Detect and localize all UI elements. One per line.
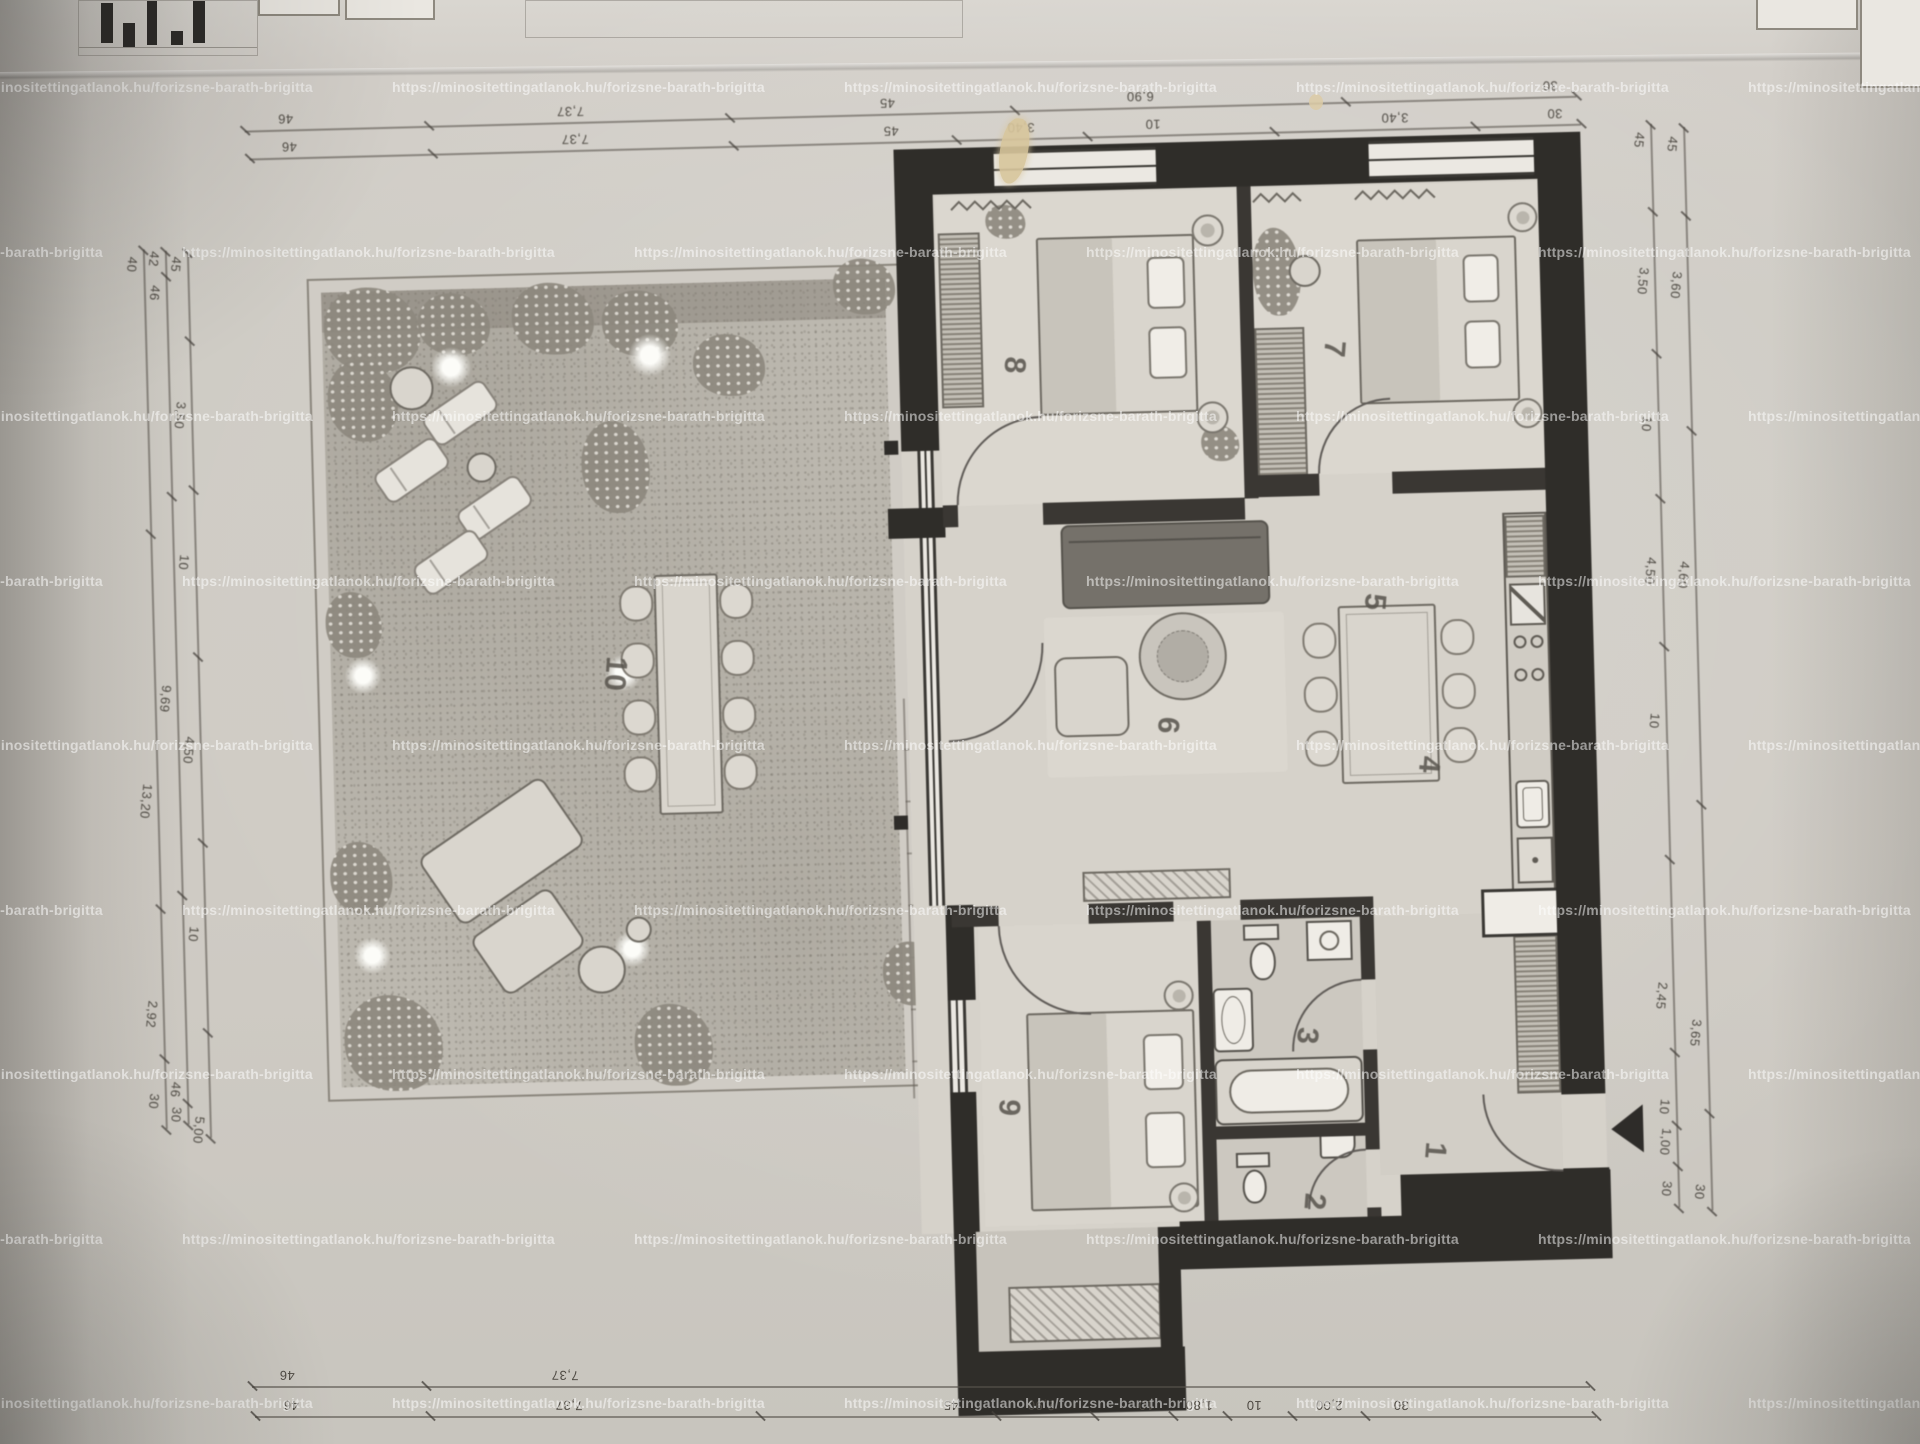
dim-value: 45 xyxy=(943,1398,959,1413)
dim-value: 2,90 xyxy=(1027,1398,1055,1413)
dim-value: 30 xyxy=(1393,1398,1409,1413)
dim-value: 1,80 xyxy=(1185,1398,1213,1413)
dimension-chains-flat: 467,37467,37452,90101,80102,0030 xyxy=(0,0,1920,1444)
dim-value: 46 xyxy=(283,1398,299,1413)
paper-stain xyxy=(1309,94,1323,110)
dim-value: 7,37 xyxy=(555,1398,583,1413)
dim-value: 2,00 xyxy=(1315,1398,1343,1413)
dim-value: 10 xyxy=(1246,1398,1262,1413)
dim-line-bottom-inner xyxy=(255,1416,1596,1418)
dim-value: 46 xyxy=(279,1368,295,1383)
dim-value: 10 xyxy=(1138,1398,1154,1413)
dim-value: 7,37 xyxy=(551,1368,579,1383)
dim-line-bottom-outer xyxy=(252,1386,1590,1388)
floor-plan-photo: 12345678910 467,37456,9030467,37453,4010… xyxy=(0,0,1920,1444)
